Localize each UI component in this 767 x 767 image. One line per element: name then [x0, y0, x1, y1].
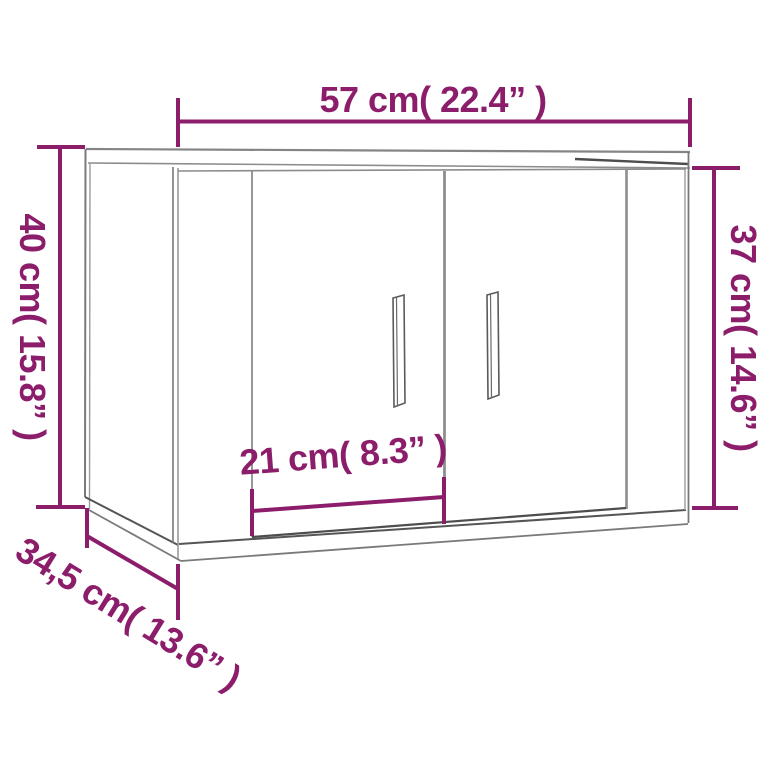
cabinet-top-strip-bottom-edge — [88, 163, 690, 168]
cabinet-top-strip-shadow — [575, 159, 688, 164]
dim-door-width-line — [252, 497, 444, 511]
dimension-width: 57 cm( 22.4” ) — [178, 79, 690, 147]
cabinet-bottom-left-edge-upper — [85, 497, 178, 545]
dimension-depth: 34,5 cm( 13.6” ) — [9, 508, 248, 698]
cabinet-dimension-drawing: 57 cm( 22.4” ) 40 cm( 15.8” ) 37 cm( 14.… — [0, 0, 767, 767]
dim-height-right-label: 37 cm( 14.6” ) — [723, 224, 764, 451]
dim-depth-label: 34,5 cm( 13.6” ) — [9, 529, 248, 698]
right-door-handle — [487, 292, 499, 399]
dimension-door-width: 21 cm( 8.3” ) — [238, 426, 448, 536]
left-handle-outline — [393, 295, 405, 407]
dim-height-left-label: 40 cm( 15.8” ) — [12, 213, 53, 440]
dimension-diagram: 57 cm( 22.4” ) 40 cm( 15.8” ) 37 cm( 14.… — [0, 0, 767, 767]
cabinet-bottom-left-edge-lower — [89, 510, 181, 561]
cabinet-top-edge — [86, 149, 690, 152]
dimension-height-left: 40 cm( 15.8” ) — [12, 147, 85, 507]
cabinet-bottom-front-edge-lower — [181, 524, 688, 561]
cabinet-door-top-edge — [178, 169, 686, 171]
dim-door-width-label: 21 cm( 8.3” ) — [238, 426, 448, 482]
cabinet-bottom-front-edge-upper — [179, 510, 686, 544]
cabinet-left-back-edge-inner — [90, 164, 91, 509]
left-door-handle — [393, 295, 405, 407]
right-handle-outline — [487, 292, 499, 399]
cabinet-left-back-edge-outer — [85, 149, 86, 497]
dim-width-label: 57 cm( 22.4” ) — [319, 79, 546, 120]
dimension-height-right: 37 cm( 14.6” ) — [692, 168, 764, 508]
